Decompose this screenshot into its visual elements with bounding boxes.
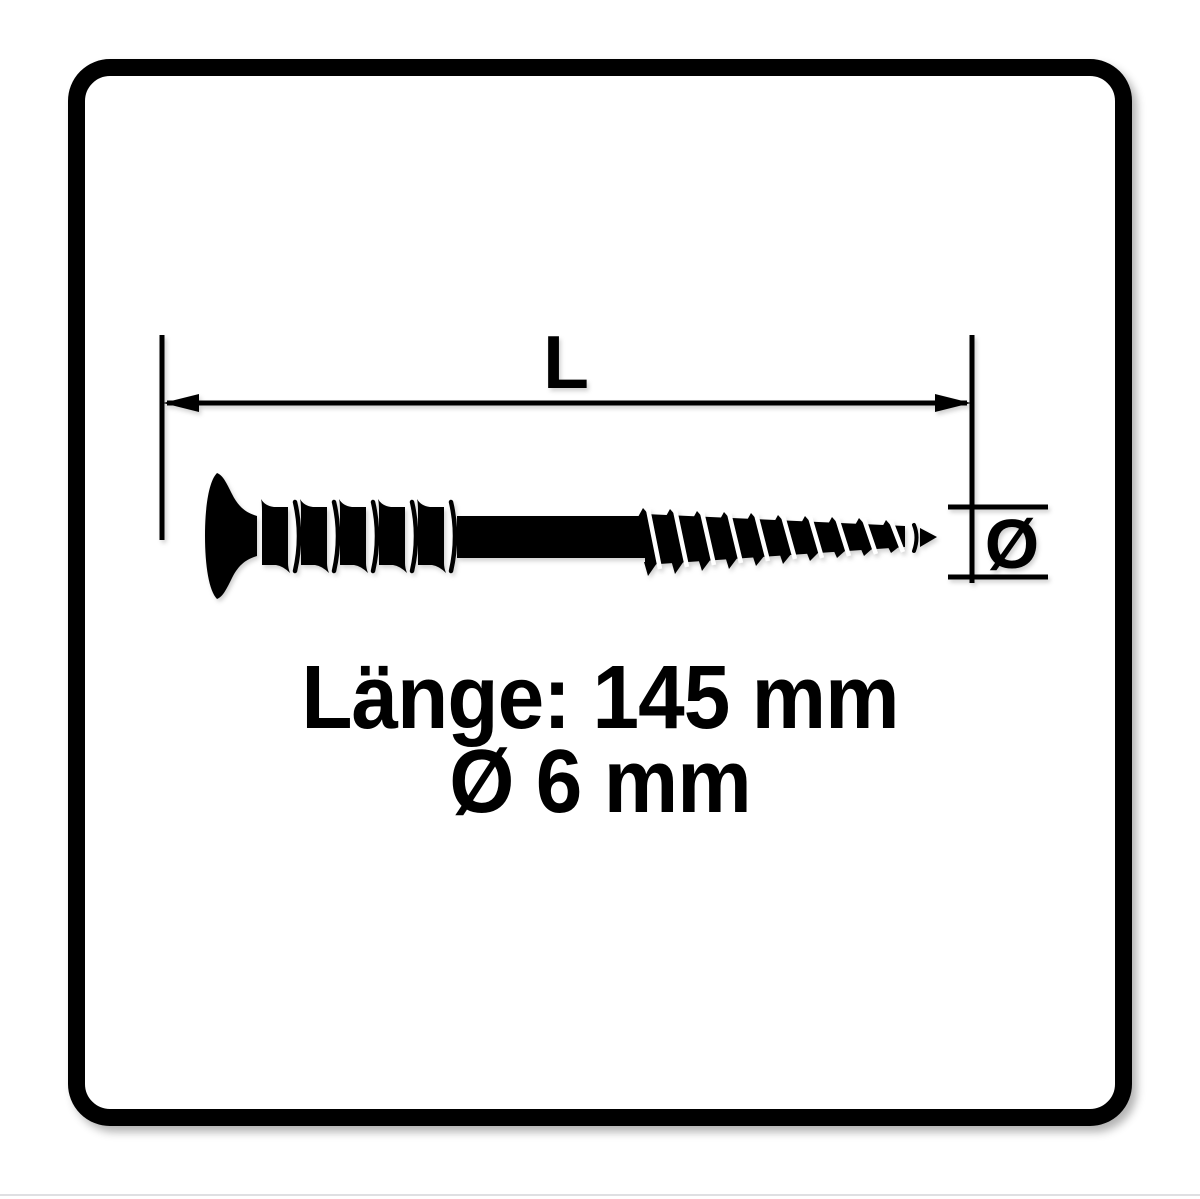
arrowhead-left-icon xyxy=(163,394,199,412)
diameter-dimension-symbol: Ø xyxy=(985,505,1039,583)
screw-upper-thread xyxy=(261,499,455,573)
arrowhead-right-icon xyxy=(935,394,971,412)
tip-crest-sliver xyxy=(914,525,917,551)
screw-illustration xyxy=(205,473,937,599)
screw-head xyxy=(205,473,257,599)
diameter-spec-text: Ø 6 mm xyxy=(42,740,1158,824)
screw-tip-thread xyxy=(638,508,937,576)
screw-technical-drawing: L xyxy=(0,0,1200,1199)
screw-shank xyxy=(457,516,650,558)
thread-block xyxy=(339,499,368,573)
diameter-dimension: Ø xyxy=(948,505,1048,583)
thread-block xyxy=(378,499,407,573)
bottom-divider-line xyxy=(0,1194,1200,1196)
product-diagram-image: L xyxy=(0,0,1200,1199)
spec-text-block: Länge: 145 mm Ø 6 mm xyxy=(42,656,1158,824)
length-dimension-label: L xyxy=(543,320,589,404)
thread-block xyxy=(261,499,290,573)
thread-block xyxy=(300,499,329,573)
thread-block xyxy=(417,499,446,573)
tip-point xyxy=(920,528,937,547)
length-spec-text: Länge: 145 mm xyxy=(42,656,1158,740)
